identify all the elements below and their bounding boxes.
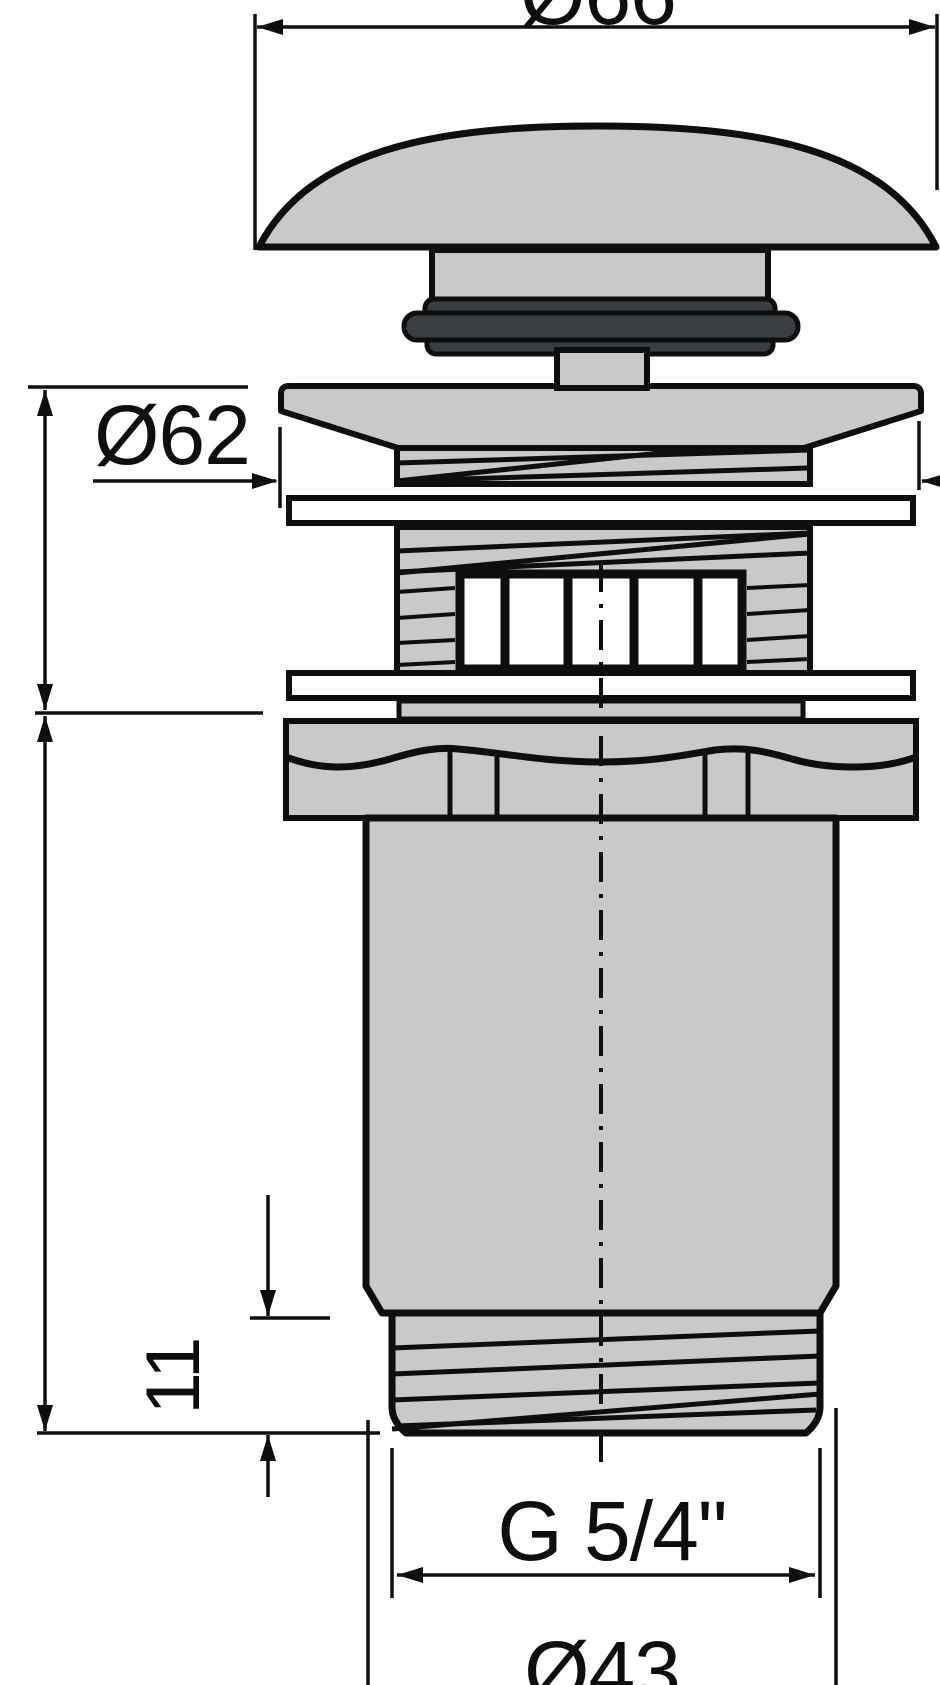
dim-label-thread-spec: G 5/4": [497, 1484, 726, 1578]
mid-thread-collar: [397, 527, 810, 676]
sink-flange: [281, 386, 921, 448]
dim-label-clamp-range: max 30: [0, 405, 2, 642]
dimension-thread-length: 11: [131, 1195, 330, 1497]
cap-stem: [557, 350, 647, 388]
dimension-thread-spec: G 5/4": [392, 1448, 820, 1598]
arrowhead-right-icon: [789, 1567, 815, 1583]
technical-drawing: Ø66 Ø62 max 30 69 11: [0, 0, 940, 1685]
dim-label-thread-length: 11: [131, 1338, 216, 1415]
arrowhead-down-icon: [37, 1405, 53, 1431]
dim-label-flange-diameter: Ø62: [94, 388, 250, 482]
arrowhead-left-icon: [257, 19, 283, 35]
arrowhead-left-icon: [397, 1567, 423, 1583]
arrowhead-right-icon: [909, 19, 935, 35]
cap-neck: [432, 250, 768, 304]
washer-upper: [289, 498, 913, 523]
arrowhead-up-icon: [260, 1435, 276, 1461]
arrowhead-left-icon: [921, 473, 940, 489]
arrowhead-down-icon: [260, 1290, 276, 1316]
dimension-body-length: 69: [0, 716, 380, 1433]
arrowhead-right-icon: [252, 473, 278, 489]
dim-label-thread-diameter: Ø43: [524, 1624, 680, 1685]
arrowhead-down-icon: [37, 684, 53, 710]
arrowhead-up-icon: [37, 716, 53, 742]
bottom-thread: [392, 1313, 820, 1433]
arrowhead-up-icon: [37, 390, 53, 416]
valve-body: [366, 818, 836, 1313]
dim-label-cap-diameter: Ø66: [520, 0, 676, 42]
rubber-seal: [404, 299, 798, 354]
cap-dome: [259, 126, 936, 247]
drawing-canvas: Ø66 Ø62 max 30 69 11: [0, 0, 940, 1685]
cap-assembly: [259, 126, 936, 388]
